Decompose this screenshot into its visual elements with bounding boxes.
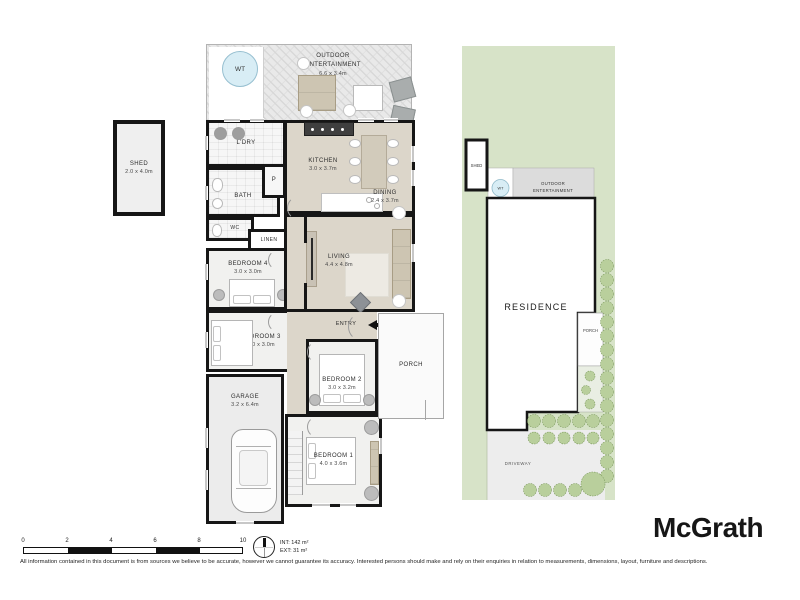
garage-door [236, 521, 254, 525]
driveway-label: DRIVEWAY [505, 461, 531, 466]
garage: GARAGE 3.2 x 6.4m [206, 374, 284, 524]
room-label: BEDROOM 4 [228, 260, 268, 269]
window [204, 332, 208, 348]
kitchen-label-group: KITCHEN 3.0 x 3.7m [293, 157, 353, 174]
wardrobe-icon [288, 431, 303, 495]
room-label: KITCHEN [293, 157, 353, 166]
room-dims: 3.2 x 6.4m [231, 402, 259, 410]
room-label: BEDROOM 2 [322, 376, 362, 385]
bedroom-1: BEDROOM 1 4.0 x 3.6m [285, 414, 382, 507]
water-tank-label: WT [235, 66, 245, 73]
window [379, 438, 383, 454]
dining-chair [349, 157, 361, 166]
window [411, 170, 415, 186]
outdoor-site-line2: ENTERTAINMENT [533, 188, 573, 193]
outdoor-line2: ENTERTAINMENT [305, 61, 361, 70]
wall-segment [304, 283, 307, 309]
area-summary: INT: 142 m² EXT: 31 m² [280, 539, 308, 556]
plant-icon [364, 420, 379, 435]
scale-tick: 2 [65, 538, 68, 544]
shed-label: SHED [130, 160, 148, 169]
room-label: LINEN [261, 237, 278, 245]
door-arc [268, 312, 288, 332]
door-arc [268, 250, 288, 270]
room-label: GARAGE [231, 393, 259, 402]
pillow [323, 394, 341, 403]
shed-dims: 2.0 x 4.0m [125, 169, 153, 177]
porch-floorplan: PORCH [378, 313, 444, 419]
pillow [213, 326, 221, 342]
side-table-icon [309, 394, 321, 406]
window [312, 503, 330, 507]
window [340, 503, 356, 507]
pillow [253, 295, 271, 304]
plant-icon [300, 105, 313, 118]
scale-tick: 0 [21, 538, 24, 544]
site-plan: SHED WT OUTDOOR ENTERTAINMENT RESIDENCE … [460, 44, 618, 506]
dining-chair [387, 175, 399, 184]
scale-tick: 6 [153, 538, 156, 544]
window [250, 118, 264, 122]
floorplan-sheet: SHED 2.0 x 4.0m WT OUTDOOR ENTERTAINMENT… [0, 0, 800, 600]
room-label: L'DRY [236, 139, 255, 148]
scale-bar-track [23, 547, 243, 554]
laundry-sink-icon [214, 127, 227, 140]
plant-icon [392, 294, 406, 308]
toilet-icon [212, 224, 222, 237]
outdoor-site-line1: OUTDOOR [541, 181, 565, 186]
dining-table [361, 135, 387, 189]
dining-chair [387, 139, 399, 148]
room-dims: 4.4 x 4.8m [325, 262, 353, 270]
room-label: BATH [234, 192, 251, 201]
pillow [343, 394, 361, 403]
room-dims: 3.0 x 3.0m [234, 269, 262, 277]
outdoor-entertainment-area: WT OUTDOOR ENTERTAINMENT 6.6 x 3.4m [206, 44, 412, 122]
room-label: DINING [371, 189, 399, 198]
window [204, 186, 208, 200]
plant-icon [297, 57, 310, 70]
porch-site [578, 313, 603, 366]
outdoor-chair [389, 76, 417, 102]
plant-icon [343, 104, 356, 117]
residence-label: RESIDENCE [504, 302, 567, 312]
door-arc [307, 341, 329, 363]
car-icon [231, 429, 277, 513]
dining-label-group: DINING 2.4 x 3.7m [371, 189, 399, 206]
wc-room: WC [206, 217, 254, 241]
north-compass-icon [253, 536, 275, 558]
window [204, 264, 208, 280]
porch-step-line [425, 400, 426, 420]
door-arc [287, 196, 311, 220]
internal-area: INT: 142 m² [280, 539, 308, 547]
pantry: P [262, 164, 286, 198]
room-label: WC [230, 225, 239, 233]
window [384, 118, 398, 122]
scale-tick: 10 [240, 538, 247, 544]
pillow [233, 295, 251, 304]
window [411, 244, 415, 262]
external-area: EXT: 31 m² [280, 547, 308, 555]
cooktop-icon [304, 122, 354, 136]
side-table-icon [213, 289, 225, 301]
scale-tick: 8 [197, 538, 200, 544]
dining-chair [387, 157, 399, 166]
window [358, 118, 374, 122]
window [204, 470, 208, 490]
shed-detail: SHED 2.0 x 4.0m [113, 120, 165, 216]
dining-chair [349, 139, 361, 148]
settee [370, 441, 379, 485]
shed-site-label: SHED [471, 163, 483, 168]
outdoor-line1: OUTDOOR [305, 52, 361, 61]
outdoor-table [353, 85, 383, 111]
plant-icon [364, 486, 379, 501]
toilet-icon [212, 178, 223, 192]
living-label-group: LIVING 4.4 x 4.8m [325, 253, 353, 270]
laundry-sink-icon [232, 127, 245, 140]
porch-label: PORCH [399, 361, 423, 370]
room-dims: 3.0 x 3.2m [328, 385, 356, 393]
room-label: P [272, 176, 276, 185]
room-label: LIVING [325, 253, 353, 262]
side-table-icon [363, 394, 375, 406]
window [224, 118, 240, 122]
porch-site-label: PORCH [583, 328, 598, 333]
room-dims: 4.0 x 3.6m [320, 461, 348, 469]
wall-segment [304, 217, 307, 243]
disclaimer-text: All information contained in this docume… [20, 559, 790, 565]
laundry-room: L'DRY [206, 120, 286, 167]
window [204, 136, 208, 150]
room-dims: 2.4 x 3.7m [371, 198, 399, 206]
scale-tick: 4 [109, 538, 112, 544]
scale-bar: 0 2 4 6 8 10 [23, 538, 263, 556]
water-tank-icon: WT [222, 51, 258, 87]
room-label: BEDROOM 1 [314, 452, 354, 461]
pillow [213, 345, 221, 361]
pillow [308, 463, 316, 479]
dining-chair [349, 175, 361, 184]
living-sofa [392, 229, 411, 299]
basin-icon [212, 198, 223, 209]
mcgrath-logo: McGrath [653, 512, 763, 544]
fireplace-icon [306, 231, 317, 287]
window [204, 428, 208, 448]
water-tank-site-label: WT [498, 187, 505, 191]
window [411, 146, 415, 162]
plant-icon [392, 206, 406, 220]
room-dims: 3.0 x 3.7m [293, 166, 353, 174]
door-arc [348, 313, 376, 341]
door-arc [307, 416, 329, 438]
corridor [287, 342, 306, 416]
